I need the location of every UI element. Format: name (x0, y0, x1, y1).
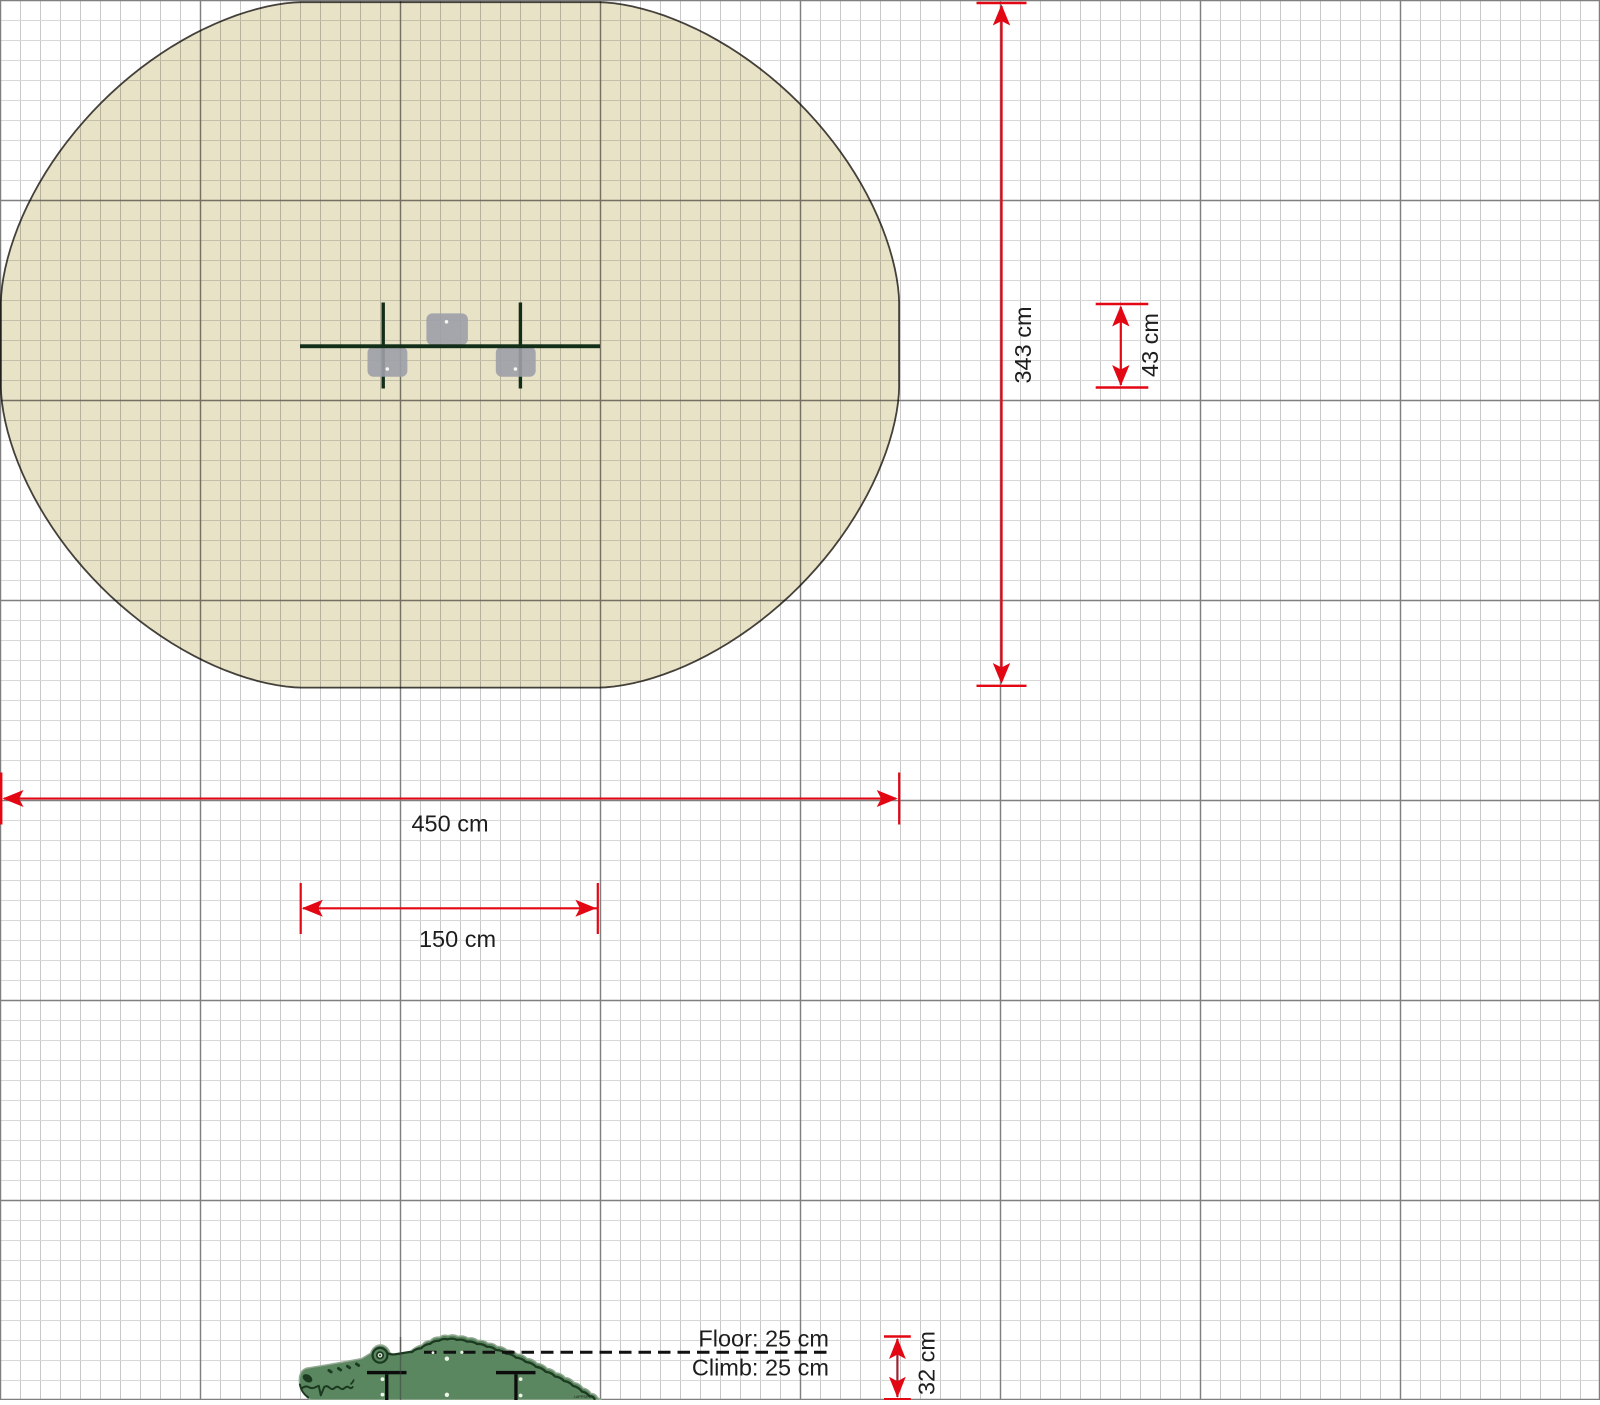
svg-text:Floor: 25 cm: Floor: 25 cm (698, 1326, 829, 1352)
svg-text:150 cm: 150 cm (419, 926, 496, 952)
svg-text:Climb: 25 cm: Climb: 25 cm (692, 1355, 829, 1381)
svg-text:43 cm: 43 cm (1137, 313, 1163, 377)
svg-text:450 cm: 450 cm (411, 811, 488, 837)
svg-text:343 cm: 343 cm (1010, 306, 1036, 383)
svg-text:32 cm: 32 cm (914, 1331, 940, 1395)
svg-text:LAPPSET: LAPPSET (574, 1395, 591, 1399)
